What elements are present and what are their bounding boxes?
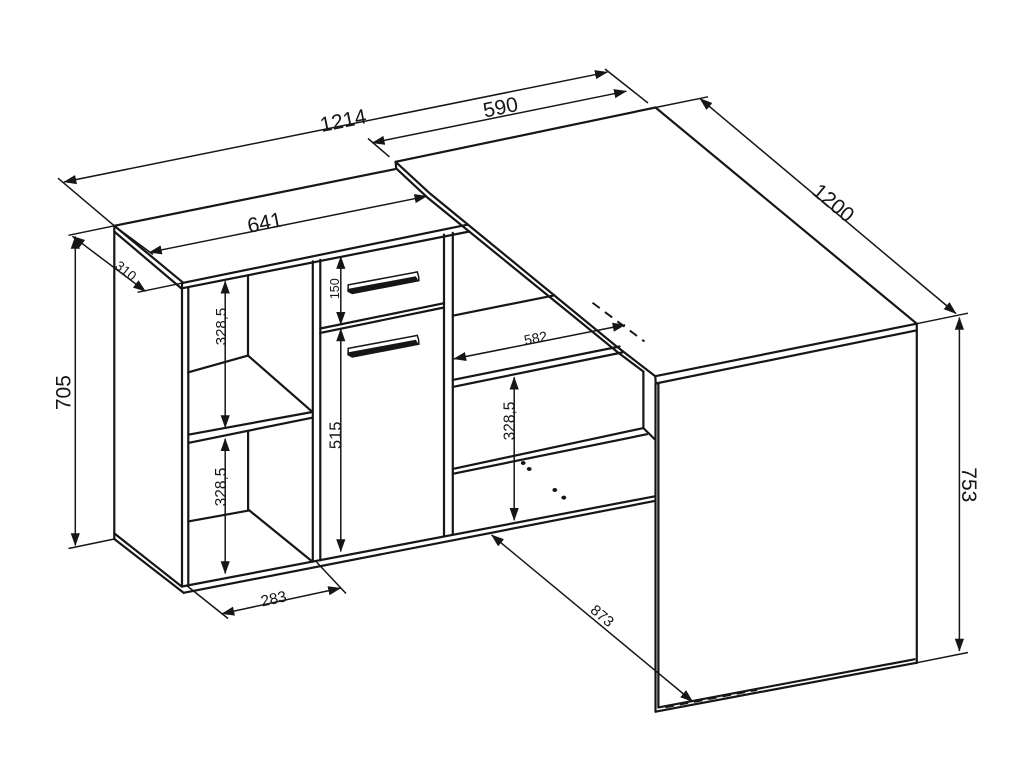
svg-text:515: 515 (327, 422, 345, 450)
svg-text:753: 753 (957, 467, 980, 502)
svg-text:328,5: 328,5 (213, 468, 230, 507)
svg-text:705: 705 (52, 375, 75, 410)
svg-text:150: 150 (328, 278, 342, 299)
svg-text:328,5: 328,5 (213, 308, 230, 346)
svg-text:328,5: 328,5 (501, 402, 518, 441)
